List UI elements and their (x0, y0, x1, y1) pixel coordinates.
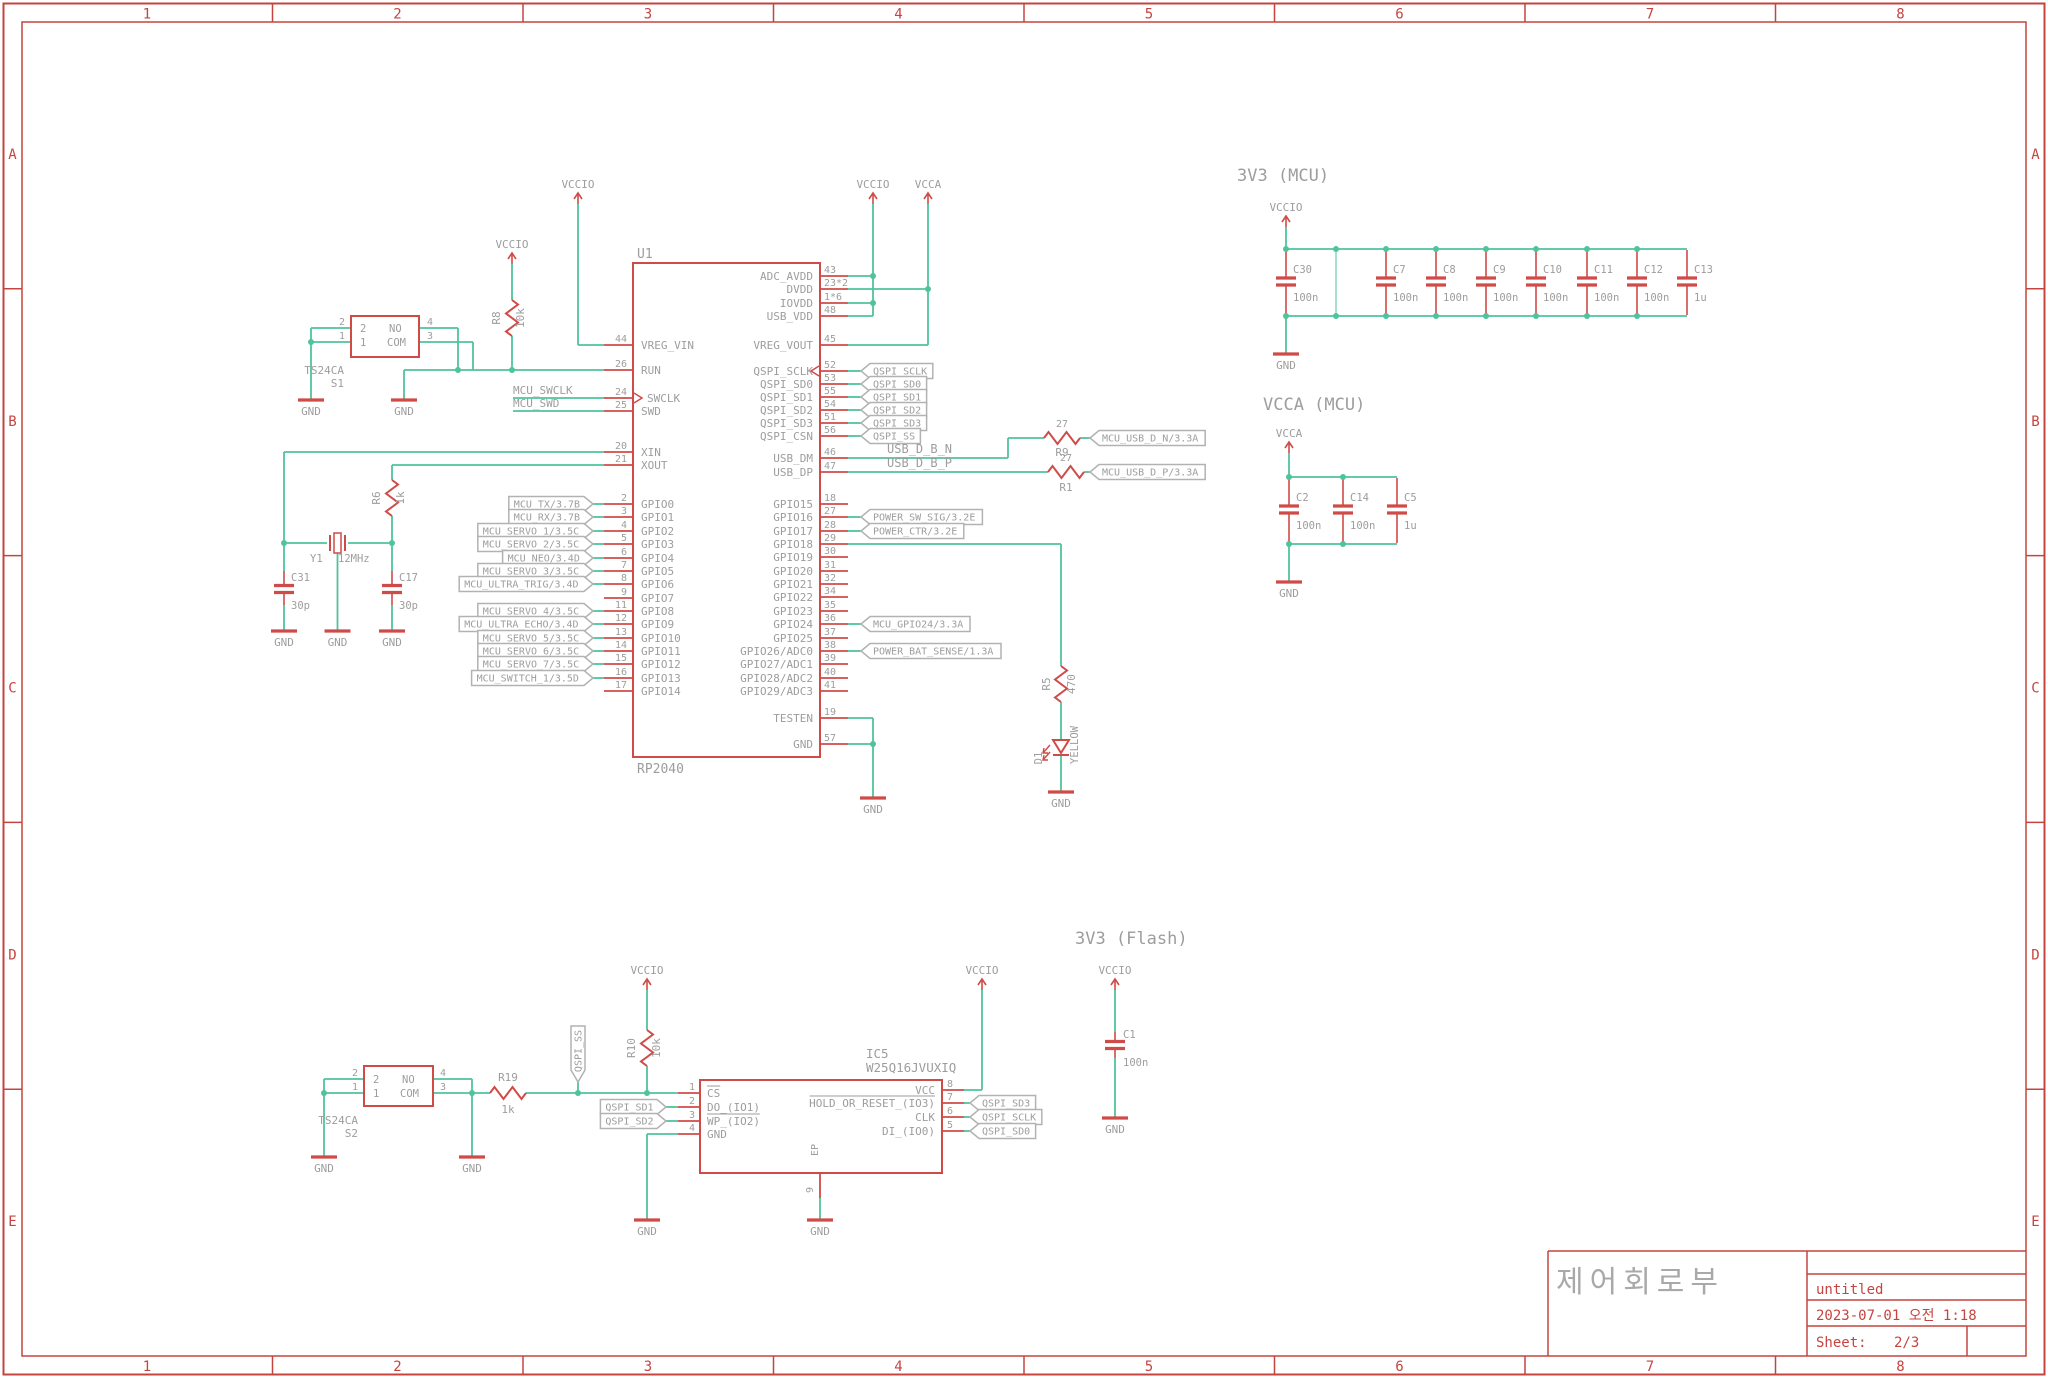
frame-column-label: 3 (644, 7, 652, 23)
component-ref: C2 (1296, 492, 1309, 504)
component-ref: C1 (1123, 1029, 1136, 1041)
component-ref: U1 (637, 247, 653, 262)
pin-number: 7 (947, 1092, 953, 1103)
pin-number: 6 (947, 1106, 953, 1117)
pin-name: GND (793, 738, 813, 751)
junction-dot (389, 540, 395, 546)
pin-number: 51 (824, 412, 836, 423)
net-label: MCU_ULTRA_ECHO/3.4D (464, 620, 578, 631)
junction-dot (1283, 313, 1289, 319)
pin-number: 39 (824, 653, 836, 664)
junction-dot (1340, 474, 1346, 480)
pin-name: QSPI_SD1 (760, 391, 813, 404)
net-label: POWER_BAT_SENSE/1.3A (873, 647, 993, 658)
pin-name: USB_DM (773, 452, 813, 465)
pin-name: GPIO22 (773, 591, 813, 604)
junction-dot (575, 1090, 581, 1096)
gnd-label: GND (314, 1162, 334, 1175)
junction-dot (1383, 246, 1389, 252)
vcca-flag: VCCA (1276, 427, 1303, 440)
pin-name: TESTEN (773, 712, 813, 725)
title-block-sheet-label: Sheet: (1816, 1335, 1867, 1351)
pin-number: 1 (352, 1082, 358, 1093)
switch-inner-num: 2 (373, 1074, 379, 1086)
component-value: 100n (1594, 292, 1619, 304)
pin-number: 4 (689, 1123, 695, 1134)
junction-dot (1533, 246, 1539, 252)
gnd-label: GND (394, 405, 414, 418)
section-heading: 3V3 (MCU) (1237, 166, 1329, 186)
gnd-label: GND (274, 636, 294, 649)
frame-column-label: 4 (894, 7, 902, 23)
junction-dot (1433, 313, 1439, 319)
pin-number: 5 (621, 533, 627, 544)
vccio-flag: VCCIO (1269, 201, 1302, 214)
led-d1[interactable] (1053, 740, 1069, 753)
pin-number: 29 (824, 533, 836, 544)
title-block-title: 제어회로부 (1556, 1265, 1724, 1300)
pin-number: 1*6 (824, 292, 842, 303)
title-block-sheet: 2/3 (1894, 1335, 1919, 1351)
frame-column-label: 1 (143, 7, 151, 23)
pin-name: GPIO7 (641, 592, 674, 605)
pin-number: 57 (824, 733, 836, 744)
pin-number: 15 (615, 653, 627, 664)
pin-name: GND (707, 1128, 727, 1141)
pin-name: SWCLK (647, 392, 680, 405)
pin-number: 52 (824, 360, 836, 371)
component-value: 1k (394, 491, 407, 505)
junction-dot (1333, 246, 1339, 252)
component-value: 1u (1694, 292, 1707, 304)
pin-number: 20 (615, 441, 627, 452)
component-ref: C8 (1443, 264, 1456, 276)
frame-row-label: E (8, 1214, 16, 1230)
pin-number: 2 (621, 493, 627, 504)
pin-number: 8 (947, 1079, 953, 1090)
pin-name: HOLD_OR_RESET_(IO3) (809, 1097, 935, 1110)
frame-row-label: C (8, 681, 16, 697)
pin-name: GPIO3 (641, 538, 674, 551)
pin-number: 23*2 (824, 278, 848, 289)
resistor-r19[interactable] (490, 1087, 526, 1099)
pin-name: XOUT (641, 459, 668, 472)
junction-dot (1483, 246, 1489, 252)
gnd-label: GND (462, 1162, 482, 1175)
net-label: QSPI_SD3 (982, 1099, 1030, 1110)
frame-column-label: 2 (393, 7, 401, 23)
pin-number: 4 (427, 317, 433, 328)
pin-number: 18 (824, 493, 836, 504)
pin-name: USB_DP (773, 466, 813, 479)
frame-row-label: D (2031, 947, 2039, 963)
component-value: 100n (1443, 292, 1468, 304)
switch-inner-num: 2 (360, 323, 366, 335)
pin-name: GPIO23 (773, 605, 813, 618)
pin-name: DVDD (787, 283, 814, 296)
gnd-label: GND (1276, 359, 1296, 372)
frame-column-label: 1 (143, 1359, 151, 1375)
vccio-flag: VCCIO (561, 178, 594, 191)
pin-name: IOVDD (780, 297, 813, 310)
junction-dot (1533, 313, 1539, 319)
pin-name: GPIO4 (641, 552, 674, 565)
pin-name: GPIO1 (641, 511, 674, 524)
pin-number: 13 (615, 627, 627, 638)
pin-number: 38 (824, 640, 836, 651)
gnd-label: GND (328, 636, 348, 649)
net-label: QSPI_SD2 (605, 1117, 653, 1128)
frame-column-label: 6 (1395, 1359, 1403, 1375)
pin-number: 40 (824, 667, 836, 678)
junction-dot (1340, 541, 1346, 547)
pin-name: GPIO17 (773, 525, 813, 538)
frame-column-label: 7 (1646, 7, 1654, 23)
pin-number: 12 (615, 613, 627, 624)
vccio-flag: VCCIO (630, 964, 663, 977)
component-value: 100n (1644, 292, 1669, 304)
junction-dot (281, 540, 287, 546)
pin-name: GPIO20 (773, 565, 813, 578)
component-ref: C10 (1543, 264, 1562, 276)
component-value: 100n (1393, 292, 1418, 304)
junction-dot (870, 300, 876, 306)
component-ref: R19 (498, 1071, 518, 1084)
pin-number: 32 (824, 573, 836, 584)
pin-number: 9 (805, 1187, 816, 1193)
frame-outer (4, 4, 2045, 1375)
net-label: MCU_USB_D_P/3.3A (1102, 468, 1198, 479)
pin-number: 1 (689, 1082, 695, 1093)
frame-column-label: 8 (1896, 7, 1904, 23)
pin-number: 35 (824, 600, 836, 611)
pin-number: 44 (615, 334, 627, 345)
pin-number: 2 (352, 1068, 358, 1079)
net-label: QSPI_SS (873, 432, 915, 443)
resistor-r1[interactable] (1048, 466, 1084, 478)
component-value: RP2040 (637, 762, 684, 777)
frame-row-label: D (8, 947, 16, 963)
component-ref: C11 (1594, 264, 1613, 276)
pin-number: 14 (615, 640, 627, 651)
vccio-flag: VCCIO (495, 238, 528, 251)
section-heading: VCCA (MCU) (1263, 395, 1365, 415)
pin-number: 55 (824, 386, 836, 397)
component-ref: C31 (291, 572, 310, 584)
vccio-flag: VCCIO (965, 964, 998, 977)
pin-number: 21 (615, 454, 627, 465)
pin-name: WP_(IO2) (707, 1115, 760, 1128)
pin-number: 19 (824, 707, 836, 718)
junction-dot (469, 1090, 475, 1096)
pin-name: RUN (641, 364, 661, 377)
junction-dot (1283, 246, 1289, 252)
gnd-label: GND (1051, 797, 1071, 810)
pin-number: 3 (689, 1110, 695, 1121)
component-ref: C13 (1694, 264, 1713, 276)
component-value: 30p (291, 600, 310, 612)
switch-inner-name: COM (400, 1088, 419, 1100)
pin-number: 34 (824, 586, 836, 597)
pin-number: 30 (824, 546, 836, 557)
junction-dot (1634, 313, 1640, 319)
component-value: 100n (1543, 292, 1568, 304)
pin-name: GPIO13 (641, 672, 681, 685)
pin-number: 3 (621, 506, 627, 517)
pin-number: 54 (824, 399, 836, 410)
gnd-label: GND (637, 1225, 657, 1238)
pin-name: GPIO12 (641, 658, 681, 671)
net-label: MCU_USB_D_N/3.3A (1102, 434, 1198, 445)
pin-number: 11 (615, 600, 627, 611)
junction-dot (1286, 474, 1292, 480)
junction-dot (509, 367, 515, 373)
pin-number: 43 (824, 265, 836, 276)
pin-name: CS (707, 1087, 720, 1100)
component-ref: C7 (1393, 264, 1406, 276)
net-name: USB_D_B_P (887, 456, 952, 470)
pin-name: GPIO24 (773, 618, 813, 631)
component-value: 100n (1493, 292, 1518, 304)
switch-inner-name: NO (389, 323, 402, 335)
pin-name: QSPI_SD2 (760, 404, 813, 417)
component-value: W25Q16JVUXIQ (866, 1060, 956, 1075)
component-value: TS24CA (318, 1114, 358, 1127)
net-label: MCU_SERVO_7/3.5C (483, 660, 579, 671)
pin-number: 56 (824, 425, 836, 436)
component-ref: S1 (331, 377, 344, 390)
net-label: POWER_SW_SIG/3.2E (873, 513, 975, 524)
pin-number: 46 (824, 447, 836, 458)
component-ref: C14 (1350, 492, 1369, 504)
gnd-label: GND (1279, 587, 1299, 600)
frame-row-label: C (2031, 681, 2039, 697)
pin-name: GPIO0 (641, 498, 674, 511)
pin-number: 3 (440, 1082, 446, 1093)
gnd-label: GND (382, 636, 402, 649)
pin-name: GPIO9 (641, 618, 674, 631)
pin-number: 2 (339, 317, 345, 328)
component-ref: S2 (345, 1127, 358, 1140)
title-block-date: 2023-07-01 오전 1:18 (1816, 1308, 1977, 1324)
frame-column-label: 4 (894, 1359, 902, 1375)
component-value: 100n (1296, 520, 1321, 532)
pin-name: DO_(IO1) (707, 1101, 760, 1114)
pin-name: GPIO5 (641, 565, 674, 578)
component-value: 30p (399, 600, 418, 612)
pin-name: GPIO19 (773, 551, 813, 564)
component-value: 100n (1123, 1057, 1148, 1069)
switch-inner-num: 1 (360, 337, 366, 349)
pin-number: 24 (615, 387, 627, 398)
frame-column-label: 6 (1395, 7, 1403, 23)
frame-row-label: B (2031, 414, 2039, 430)
junction-dot (1584, 246, 1590, 252)
component-ref: R5 (1040, 677, 1053, 690)
junction-dot (1333, 313, 1339, 319)
frame-column-label: 2 (393, 1359, 401, 1375)
pin-name: QSPI_SD3 (760, 417, 813, 430)
pin-name: GPIO28/ADC2 (740, 672, 813, 685)
gnd-label: GND (301, 405, 321, 418)
pin-name: GPIO21 (773, 578, 813, 591)
pin-number: 6 (621, 547, 627, 558)
component-ref: C9 (1493, 264, 1506, 276)
pin-name: GPIO6 (641, 578, 674, 591)
junction-dot (1433, 246, 1439, 252)
pin-name: XIN (641, 446, 661, 459)
pin-name: DI_(IO0) (882, 1125, 935, 1138)
junction-dot (925, 286, 931, 292)
pin-name: GPIO16 (773, 511, 813, 524)
component-ref: R10 (625, 1038, 638, 1058)
resistor-r9[interactable] (1044, 432, 1080, 444)
pin-name: GPIO15 (773, 498, 813, 511)
pin-name: GPIO14 (641, 685, 681, 698)
switch-s2[interactable] (364, 1066, 433, 1106)
junction-dot (1383, 313, 1389, 319)
component-ref: C12 (1644, 264, 1663, 276)
net-label: MCU_RX/3.7B (514, 513, 580, 524)
title-block-doc: untitled (1816, 1282, 1883, 1298)
schematic-sheet: 1122334455667788AABBCCDDEE제어회로부untitled2… (0, 0, 2048, 1378)
pin-number: 25 (615, 400, 627, 411)
pin-number: 4 (621, 520, 627, 531)
junction-dot (308, 339, 314, 345)
frame-row-label: B (8, 414, 16, 430)
pin-number: 27 (824, 506, 836, 517)
gnd-label: GND (810, 1225, 830, 1238)
pin-name: GPIO29/ADC3 (740, 685, 813, 698)
switch-inner-num: 1 (373, 1088, 379, 1100)
pin-name: VREG_VOUT (753, 339, 813, 352)
component-ref: R6 (370, 491, 383, 504)
net-label: MCU_SERVO_2/3.5C (483, 540, 579, 551)
pin-number: 37 (824, 627, 836, 638)
pin-name: GPIO11 (641, 645, 681, 658)
pin-number: 9 (621, 587, 627, 598)
component-ref: C30 (1293, 264, 1312, 276)
pin-name: QSPI_CSN (760, 430, 813, 443)
pin-number: 5 (947, 1120, 953, 1131)
frame-column-label: 3 (644, 1359, 652, 1375)
schematic-canvas: 1122334455667788AABBCCDDEE제어회로부untitled2… (0, 0, 2048, 1378)
pin-name: GPIO8 (641, 605, 674, 618)
frame-row-label: A (8, 147, 17, 163)
junction-dot (1286, 541, 1292, 547)
vccio-flag: VCCIO (856, 178, 889, 191)
component-ref: C17 (399, 572, 418, 584)
net-name: MCU_SWD (513, 397, 559, 410)
junction-dot (870, 273, 876, 279)
component-value: 470 (1065, 674, 1078, 694)
pin-number: 53 (824, 373, 836, 384)
component-value: 10k (650, 1038, 663, 1058)
pin-number: 17 (615, 680, 627, 691)
pin-name: VCC (915, 1084, 935, 1097)
component-value: 100n (1293, 292, 1318, 304)
pin-number: 26 (615, 359, 627, 370)
pin-number: 4 (440, 1068, 446, 1079)
pin-name: QSPI_SCLK (753, 365, 813, 378)
component-value: 100n (1350, 520, 1375, 532)
pin-name: USB_VDD (767, 310, 813, 323)
switch-inner-name: NO (402, 1074, 415, 1086)
pin-number: 47 (824, 461, 836, 472)
net-label: POWER_CTR/3.2E (873, 527, 957, 538)
component-value: 12MHz (338, 553, 370, 565)
pin-number: 31 (824, 560, 836, 571)
gnd-label: GND (863, 803, 883, 816)
pin-name: CLK (915, 1111, 935, 1124)
net-label: QSPI_SS (574, 1030, 585, 1072)
net-name: MCU_SWCLK (513, 384, 573, 397)
component-value: YELLOW (1069, 725, 1081, 764)
junction-dot (1483, 313, 1489, 319)
pin-number: 1 (339, 331, 345, 342)
component-value: TS24CA (304, 364, 344, 377)
pin-number: 36 (824, 613, 836, 624)
vccio-flag: VCCIO (1098, 964, 1131, 977)
switch-inner-name: COM (387, 337, 406, 349)
pin-name: GPIO2 (641, 525, 674, 538)
pin-name: SWD (641, 405, 661, 418)
component-value: 27 (1056, 419, 1068, 430)
pin-name: EP (810, 1144, 821, 1156)
pin-name: GPIO18 (773, 538, 813, 551)
pin-number: 7 (621, 560, 627, 571)
component-value: 1k (501, 1103, 515, 1116)
pin-number: 2 (689, 1096, 695, 1107)
pin-name: VREG_VIN (641, 339, 694, 352)
pin-name: GPIO27/ADC1 (740, 658, 813, 671)
frame-column-label: 5 (1145, 7, 1153, 23)
component-ref: C5 (1404, 492, 1417, 504)
component-value: 1u (1404, 520, 1417, 532)
junction-dot (1634, 246, 1640, 252)
frame-column-label: 5 (1145, 1359, 1153, 1375)
section-heading: 3V3 (Flash) (1075, 929, 1188, 949)
pin-number: 41 (824, 680, 836, 691)
net-label: MCU_ULTRA_TRIG/3.4D (464, 580, 578, 591)
net-label: MCU_SWITCH_1/3.5D (477, 674, 579, 685)
pin-number: 8 (621, 573, 627, 584)
frame-row-label: A (2031, 147, 2040, 163)
net-label: MCU_GPIO24/3.3A (873, 620, 963, 631)
component-ref: Y1 (310, 553, 323, 565)
pin-number: 3 (427, 331, 433, 342)
junction-dot (321, 1090, 327, 1096)
pin-number: 28 (824, 520, 836, 531)
pin-name: GPIO10 (641, 632, 681, 645)
junction-dot (644, 1090, 650, 1096)
clock-marker (634, 393, 642, 403)
net-name: USB_D_B_N (887, 442, 952, 456)
frame-row-label: E (2031, 1214, 2039, 1230)
frame-column-label: 7 (1646, 1359, 1654, 1375)
junction-dot (1584, 313, 1590, 319)
junction-dot (455, 367, 461, 373)
pin-name: GPIO25 (773, 632, 813, 645)
pin-number: 16 (615, 667, 627, 678)
gnd-label: GND (1105, 1123, 1125, 1136)
pin-number: 48 (824, 305, 836, 316)
crystal-y1[interactable] (334, 533, 341, 553)
component-ref: IC5 (866, 1046, 889, 1061)
net-label: QSPI_SD0 (982, 1127, 1030, 1138)
junction-dot (870, 741, 876, 747)
component-ref: R1 (1059, 481, 1072, 494)
